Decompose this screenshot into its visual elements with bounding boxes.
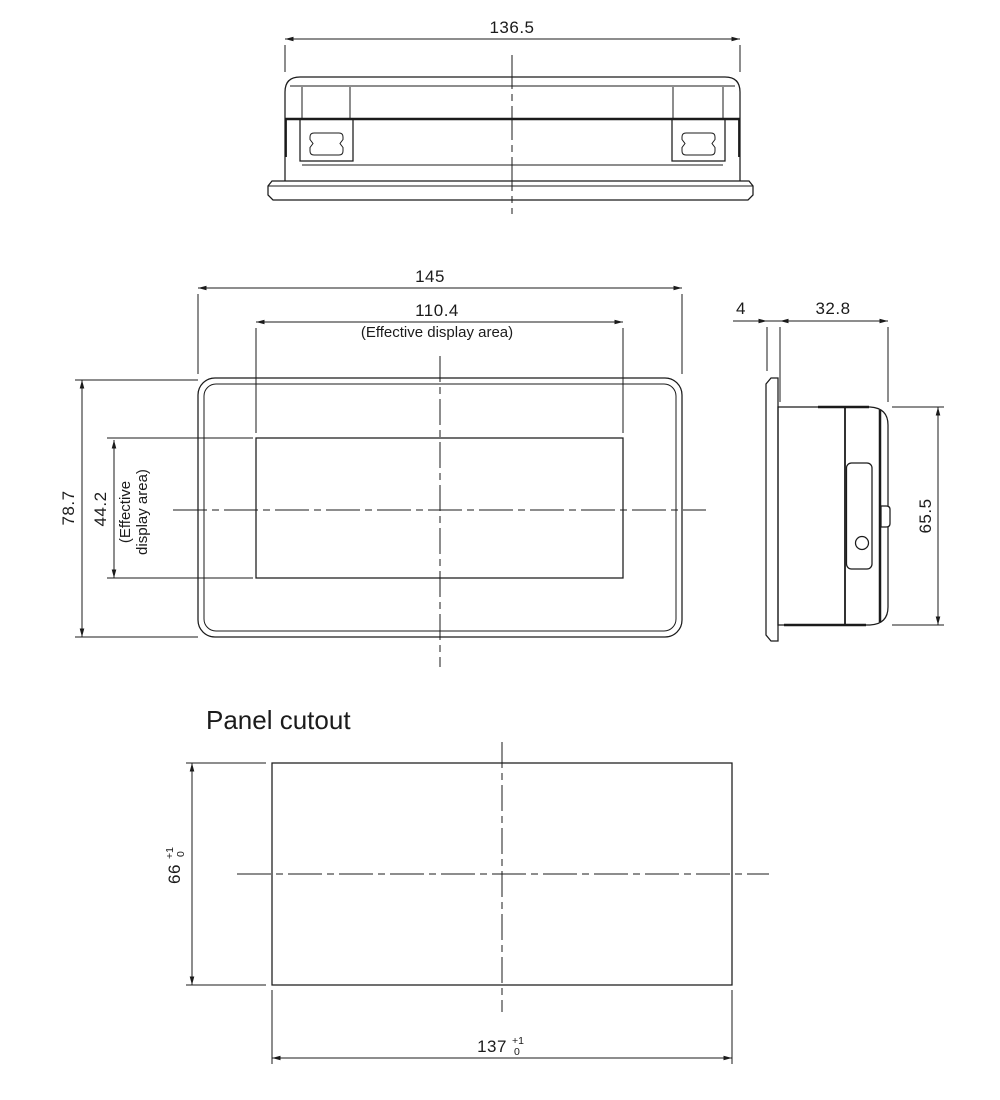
dim-cutout-width-label: 137 bbox=[477, 1037, 507, 1056]
terminal-screw-hole bbox=[856, 537, 869, 550]
dim-display-height: 44.2 (Effective display area) bbox=[91, 438, 253, 578]
side-body-thick-edges bbox=[784, 407, 869, 625]
dim-front-width-label: 145 bbox=[415, 267, 445, 286]
dim-top-width-label: 136.5 bbox=[489, 18, 534, 37]
dim-cutout-width-tol-lower: 0 bbox=[514, 1046, 520, 1058]
top-view: 136.5 bbox=[268, 18, 753, 214]
latch-slot-right bbox=[682, 133, 715, 155]
dim-cutout-height-label-group: 66 +1 0 bbox=[164, 847, 187, 884]
dim-side-height-label: 65.5 bbox=[916, 498, 935, 533]
rear-connector-tab bbox=[881, 506, 890, 527]
dim-bezel-thickness-label: 4 bbox=[736, 299, 746, 318]
dim-depth-label: 32.8 bbox=[815, 299, 850, 318]
display-width-note: (Effective display area) bbox=[361, 324, 513, 341]
dim-cutout-height-label: 66 bbox=[165, 864, 184, 884]
display-height-note-line1: (Effective bbox=[117, 481, 134, 543]
dim-display-height-label: 44.2 bbox=[91, 491, 110, 526]
dim-display-width-label: 110.4 bbox=[415, 301, 459, 320]
display-height-note-line2: display area) bbox=[134, 469, 151, 555]
technical-drawing-sheet: 136.5 145 110.4 (Effective display area) bbox=[0, 0, 1000, 1100]
extension-lines bbox=[767, 327, 888, 402]
side-bezel-outline bbox=[766, 378, 778, 641]
terminal-cover bbox=[847, 463, 873, 569]
panel-cutout-view: Panel cutout 66 +1 0 137 +1 0 bbox=[164, 705, 769, 1064]
dim-side-top: 4 32.8 bbox=[733, 299, 888, 402]
latch-slot-left bbox=[310, 133, 343, 155]
front-flange-outline bbox=[268, 181, 753, 200]
dim-side-height: 65.5 bbox=[892, 407, 944, 625]
dim-cutout-height-tol-lower: 0 bbox=[175, 851, 187, 857]
panel-cutout-title: Panel cutout bbox=[206, 705, 351, 735]
side-view: 4 32.8 65.5 bbox=[733, 299, 944, 641]
front-view: 145 110.4 (Effective display area) 78.7 … bbox=[59, 267, 706, 667]
dim-front-height-label: 78.7 bbox=[59, 490, 78, 525]
panel-meter-dimension-drawing: 136.5 145 110.4 (Effective display area) bbox=[0, 0, 1000, 1100]
